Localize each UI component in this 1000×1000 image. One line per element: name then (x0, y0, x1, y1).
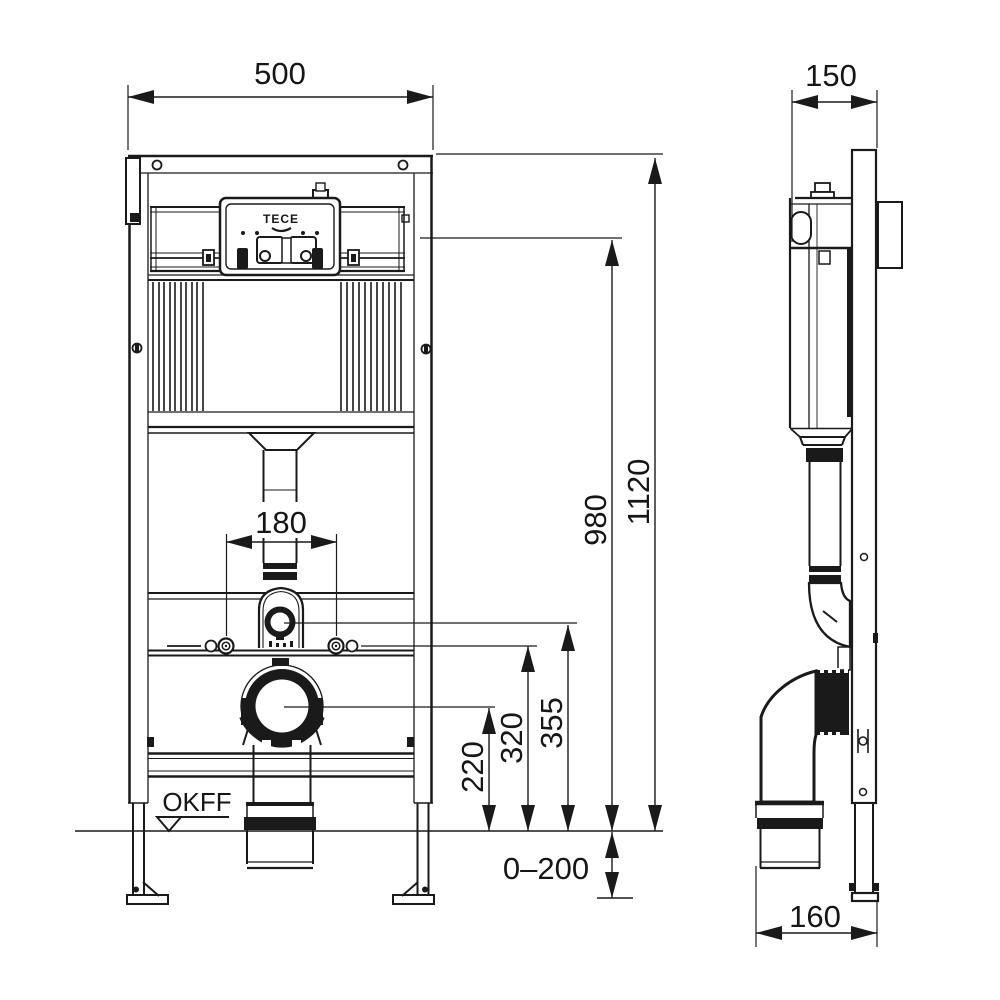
dim-label-drain-center-height: 220 (455, 741, 490, 793)
side-connector-seal (806, 448, 843, 462)
installation-drawing: TECE (0, 0, 1000, 1000)
bolt-left-dot (225, 645, 227, 647)
coupling-tooth (844, 668, 848, 673)
arrow-up-icon (561, 625, 575, 651)
arrow-left-icon (226, 535, 252, 549)
fill-valve-cap (815, 183, 830, 192)
floor-level-marker-icon (157, 817, 181, 831)
dim-label-cistern-top-height: 980 (578, 494, 613, 546)
side-flush-pipe-walls (810, 462, 841, 566)
cistern-funnel (249, 433, 314, 450)
cover-dot (301, 231, 305, 235)
arrow-down-icon (561, 805, 575, 831)
side-cistern-cap (800, 437, 845, 445)
side-drain-bend (761, 671, 816, 802)
side-rail (852, 150, 876, 803)
arrow-right-icon (851, 95, 877, 109)
side-flush-pipe-band (809, 575, 841, 583)
channel-end-tab-left (147, 737, 154, 747)
arrow-right-icon (407, 90, 433, 104)
side-cistern-back-band (847, 247, 852, 417)
channel-end-tab-right (407, 737, 414, 747)
coupling-tooth (828, 732, 832, 737)
side-cistern-taper (791, 429, 852, 437)
foot-plate-right (393, 895, 434, 904)
band-clip-left-core (206, 254, 211, 262)
side-elbow-outlet (838, 647, 850, 670)
arrow-right-icon (851, 926, 877, 940)
cradle-slot (262, 740, 271, 748)
flush-pipe-band (263, 563, 297, 569)
side-flush-pipe-band (809, 566, 841, 572)
dim-label-outlet-offset: 160 (789, 899, 841, 934)
side-cistern (790, 183, 852, 462)
arch-foot-mark (290, 641, 293, 647)
side-outlet-seal (757, 818, 823, 829)
foot-screw-right (422, 887, 428, 893)
cradle-slot (292, 740, 301, 748)
outlet-flange-sides (247, 806, 313, 817)
outlet-pipe-lower (247, 830, 313, 864)
dimensions: 500 150 180 1120 (128, 56, 877, 947)
coupling-tooth (836, 668, 840, 673)
wall-bracket (878, 202, 902, 268)
flush-pipe-band (263, 572, 297, 580)
floor-reference: OKFF (75, 787, 663, 831)
channel-inner (148, 759, 414, 772)
push-rod-right (301, 251, 311, 261)
side-view (755, 150, 902, 901)
left-hanger-tab-detail (130, 213, 140, 222)
dim-label-frame-depth: 150 (805, 58, 857, 93)
crossbar-line (148, 651, 414, 656)
bolt-washer-right (347, 641, 358, 652)
side-rail-screw (861, 554, 868, 561)
coupling-tooth (836, 732, 840, 737)
side-foot (852, 893, 878, 901)
cistern (148, 275, 414, 450)
dim-label-front-width: 500 (254, 56, 306, 91)
side-bracket-hole (859, 737, 867, 745)
foot-braces (143, 882, 418, 896)
side-flange-sides (756, 805, 823, 818)
dim-floor-buildup: 0–200 (503, 832, 633, 898)
coupling-tooth (828, 668, 832, 673)
push-rod-left (260, 251, 270, 261)
arrow-down-icon (521, 805, 535, 831)
side-leg-nub-left (849, 883, 854, 891)
arrow-down-icon (605, 872, 619, 898)
bolt-washer-left (206, 641, 217, 652)
coupling-tooth (820, 668, 824, 673)
coupling-tooth (820, 732, 824, 737)
arrow-right-icon (311, 535, 337, 549)
dim-label-total-height: 1120 (621, 459, 656, 526)
arrow-down-icon (605, 805, 619, 831)
arrow-left-icon (128, 90, 154, 104)
outlet-seal (244, 817, 316, 830)
technical-drawing-page: TECE (0, 0, 1000, 1000)
arrow-down-icon (648, 805, 662, 831)
cover-dot (315, 231, 319, 235)
cistern-ribs-left (153, 282, 203, 411)
side-leg-nub-right (874, 883, 879, 891)
bolt-left (237, 248, 248, 269)
arrow-down-icon (482, 805, 496, 831)
brand-logo: TECE (263, 212, 299, 226)
arch-key (276, 634, 284, 640)
cover-dot (255, 231, 259, 235)
rail-screw-right-slot (424, 345, 428, 353)
drain-outlet (244, 804, 316, 868)
dim-front-width: 500 (128, 56, 433, 150)
channel-outer (148, 754, 414, 777)
rail-screw-left-slot (135, 344, 139, 352)
bolt-right-dot (335, 645, 337, 647)
side-cistern-detail (819, 251, 830, 264)
arrow-left-icon (792, 95, 818, 109)
side-leg (855, 803, 873, 893)
arrow-left-icon (756, 926, 782, 940)
top-rail-hole-right (399, 161, 408, 170)
bolt-right (312, 248, 323, 269)
side-rail-nub (873, 633, 878, 643)
dim-label-flush-center-height: 355 (534, 697, 569, 749)
side-leg-screw (860, 789, 867, 796)
flush-unit-cover: TECE (220, 183, 340, 275)
dim-bolt-height: 320 (361, 646, 537, 831)
flush-valve-capsule (791, 212, 811, 244)
opening-divider (282, 238, 291, 263)
arrow-up-icon (605, 240, 619, 266)
arrow-up-icon (605, 832, 619, 858)
foot-plate-left (127, 895, 168, 904)
arch-foot-mark (283, 643, 286, 647)
cistern-ribs-right (341, 282, 401, 411)
rail-clip-right (402, 215, 409, 222)
drain-bore (256, 680, 309, 733)
side-flush-pipe (809, 462, 850, 670)
ext-lines (128, 85, 433, 150)
foot-screw-left (133, 887, 139, 893)
band-clip-right-core (351, 254, 356, 262)
arrow-up-icon (521, 646, 535, 672)
floor-label: OKFF (162, 787, 231, 817)
top-rail-hole-left (153, 161, 162, 170)
cover-dot (241, 231, 245, 235)
arch-foot-mark (269, 641, 272, 647)
dim-label-floor-buildup: 0–200 (503, 851, 589, 886)
flush-connection-bore (271, 613, 290, 632)
arrow-up-icon (648, 158, 662, 184)
dim-label-bolt-spacing: 180 (255, 505, 307, 540)
wc-bend-arch (259, 588, 303, 648)
side-drain (755, 668, 849, 868)
vent-pipe-top (316, 183, 325, 191)
arch-foot-mark (276, 643, 279, 647)
drain-coupling-block (816, 670, 849, 735)
dim-label-bolt-height: 320 (494, 712, 529, 764)
